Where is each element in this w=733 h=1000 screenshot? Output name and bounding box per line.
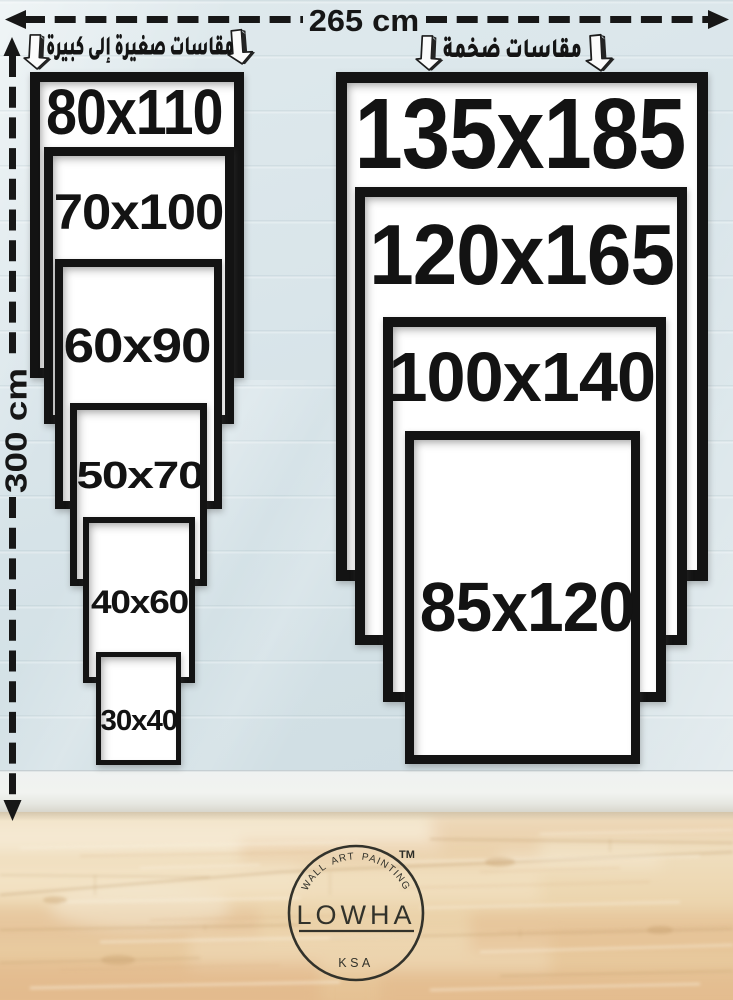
svg-text:LOWHA: LOWHA <box>296 900 415 930</box>
svg-text:TM: TM <box>399 849 415 861</box>
svg-text:KSA: KSA <box>338 956 374 970</box>
